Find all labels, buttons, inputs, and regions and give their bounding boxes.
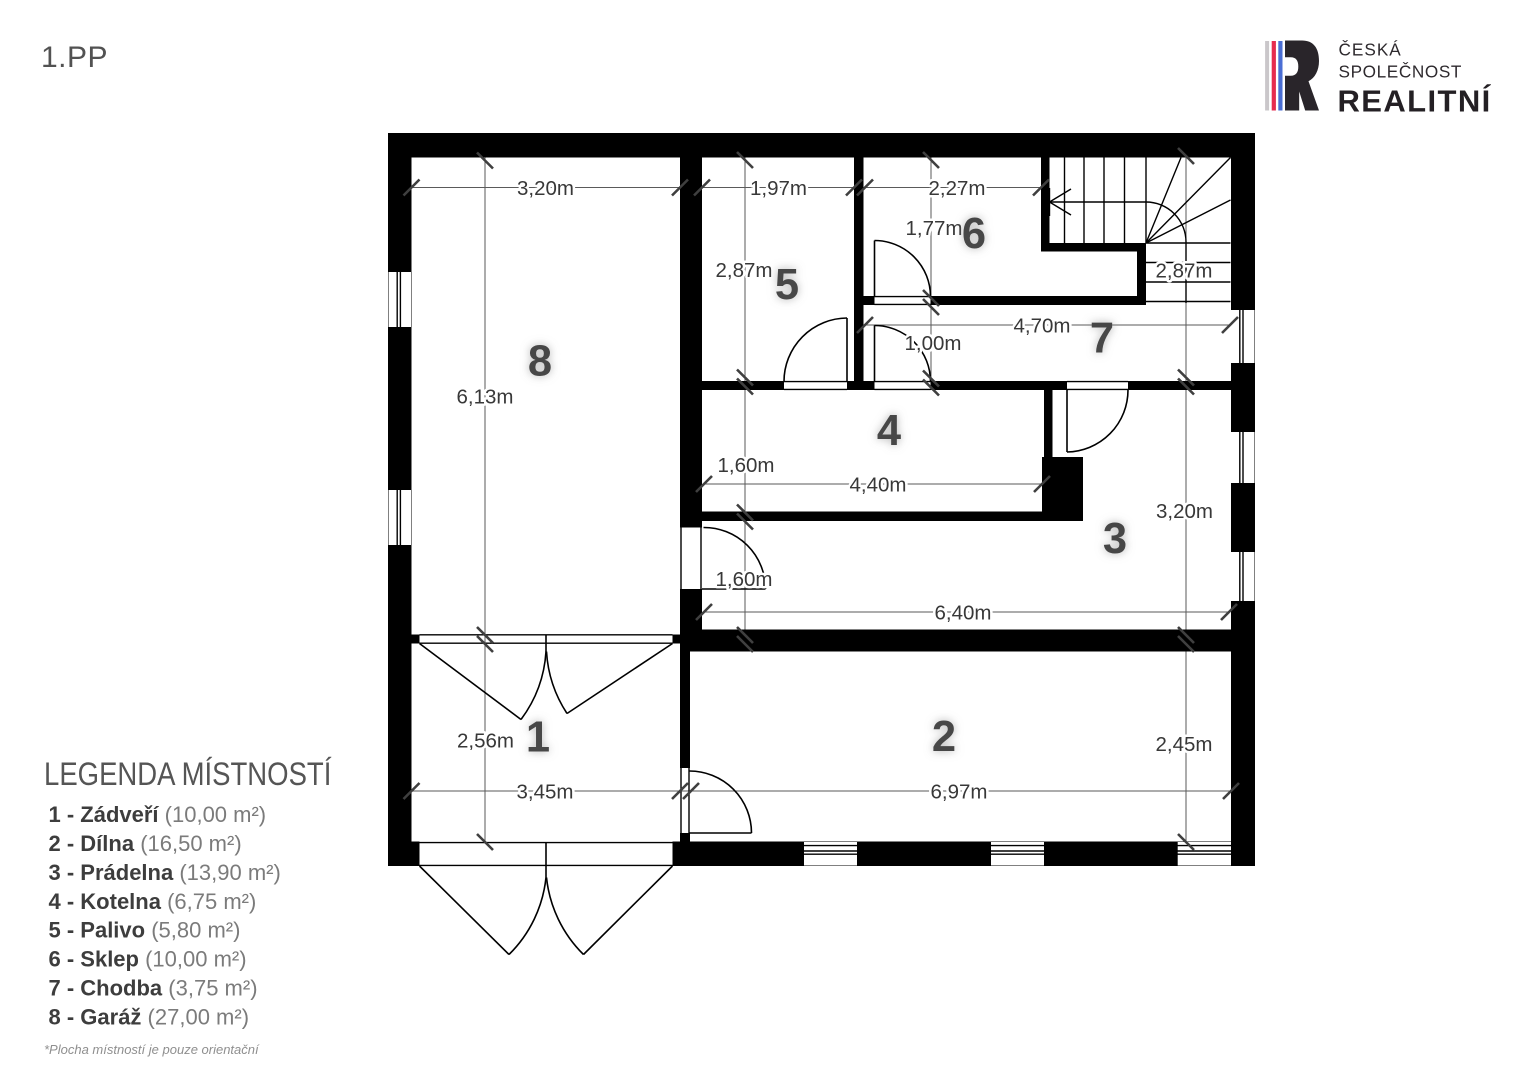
svg-text:7 - Chodba (3,75 m²): 7 - Chodba (3,75 m²) [49,976,258,1001]
svg-text:3,20m: 3,20m [517,177,574,200]
svg-text:2,45m: 2,45m [1156,733,1213,756]
svg-text:REALITNÍ: REALITNÍ [1338,84,1492,119]
svg-text:3: 3 [1103,515,1127,563]
svg-text:3 - Prádelna (13,90 m²): 3 - Prádelna (13,90 m²) [49,860,281,885]
svg-text:1,60m: 1,60m [718,454,775,477]
svg-text:*Plocha místností je pouze ori: *Plocha místností je pouze orientační [44,1042,260,1057]
svg-text:2,87m: 2,87m [1156,260,1213,283]
svg-text:8 - Garáž (27,00 m²): 8 - Garáž (27,00 m²) [49,1005,250,1030]
svg-text:7: 7 [1090,315,1114,363]
svg-text:3,20m: 3,20m [1156,500,1213,523]
svg-text:SPOLEČNOST: SPOLEČNOST [1339,61,1462,81]
svg-text:4,70m: 4,70m [1014,314,1071,337]
svg-text:3,45m: 3,45m [517,780,574,803]
svg-text:1 - Zádveří (10,00 m²): 1 - Zádveří (10,00 m²) [49,802,267,827]
svg-text:1,00m: 1,00m [905,332,962,355]
svg-text:4 - Kotelna (6,75 m²): 4 - Kotelna (6,75 m²) [49,889,257,914]
svg-text:4: 4 [877,407,901,455]
svg-text:LEGENDA MÍSTNOSTÍ: LEGENDA MÍSTNOSTÍ [44,757,332,792]
svg-text:1,77m: 1,77m [906,217,963,240]
svg-text:4,40m: 4,40m [850,474,907,497]
svg-text:6 - Sklep (10,00 m²): 6 - Sklep (10,00 m²) [49,947,247,972]
svg-text:5: 5 [775,261,799,309]
svg-text:2,27m: 2,27m [929,177,986,200]
svg-text:2,87m: 2,87m [716,259,773,282]
svg-text:2,56m: 2,56m [457,729,514,752]
svg-text:2 - Dílna (16,50 m²): 2 - Dílna (16,50 m²) [49,831,242,856]
svg-text:1,97m: 1,97m [750,177,807,200]
svg-text:1: 1 [526,714,550,762]
svg-text:ČESKÁ: ČESKÁ [1339,40,1402,60]
svg-text:6,97m: 6,97m [931,780,988,803]
svg-text:8: 8 [528,338,552,386]
svg-text:6,13m: 6,13m [457,385,514,408]
svg-text:6,40m: 6,40m [935,601,992,624]
svg-text:2: 2 [932,713,956,761]
svg-text:5 - Palivo (5,80 m²): 5 - Palivo (5,80 m²) [49,918,241,943]
svg-text:1,60m: 1,60m [716,568,773,591]
svg-text:1.PP: 1.PP [41,41,108,74]
svg-text:6: 6 [962,210,986,258]
